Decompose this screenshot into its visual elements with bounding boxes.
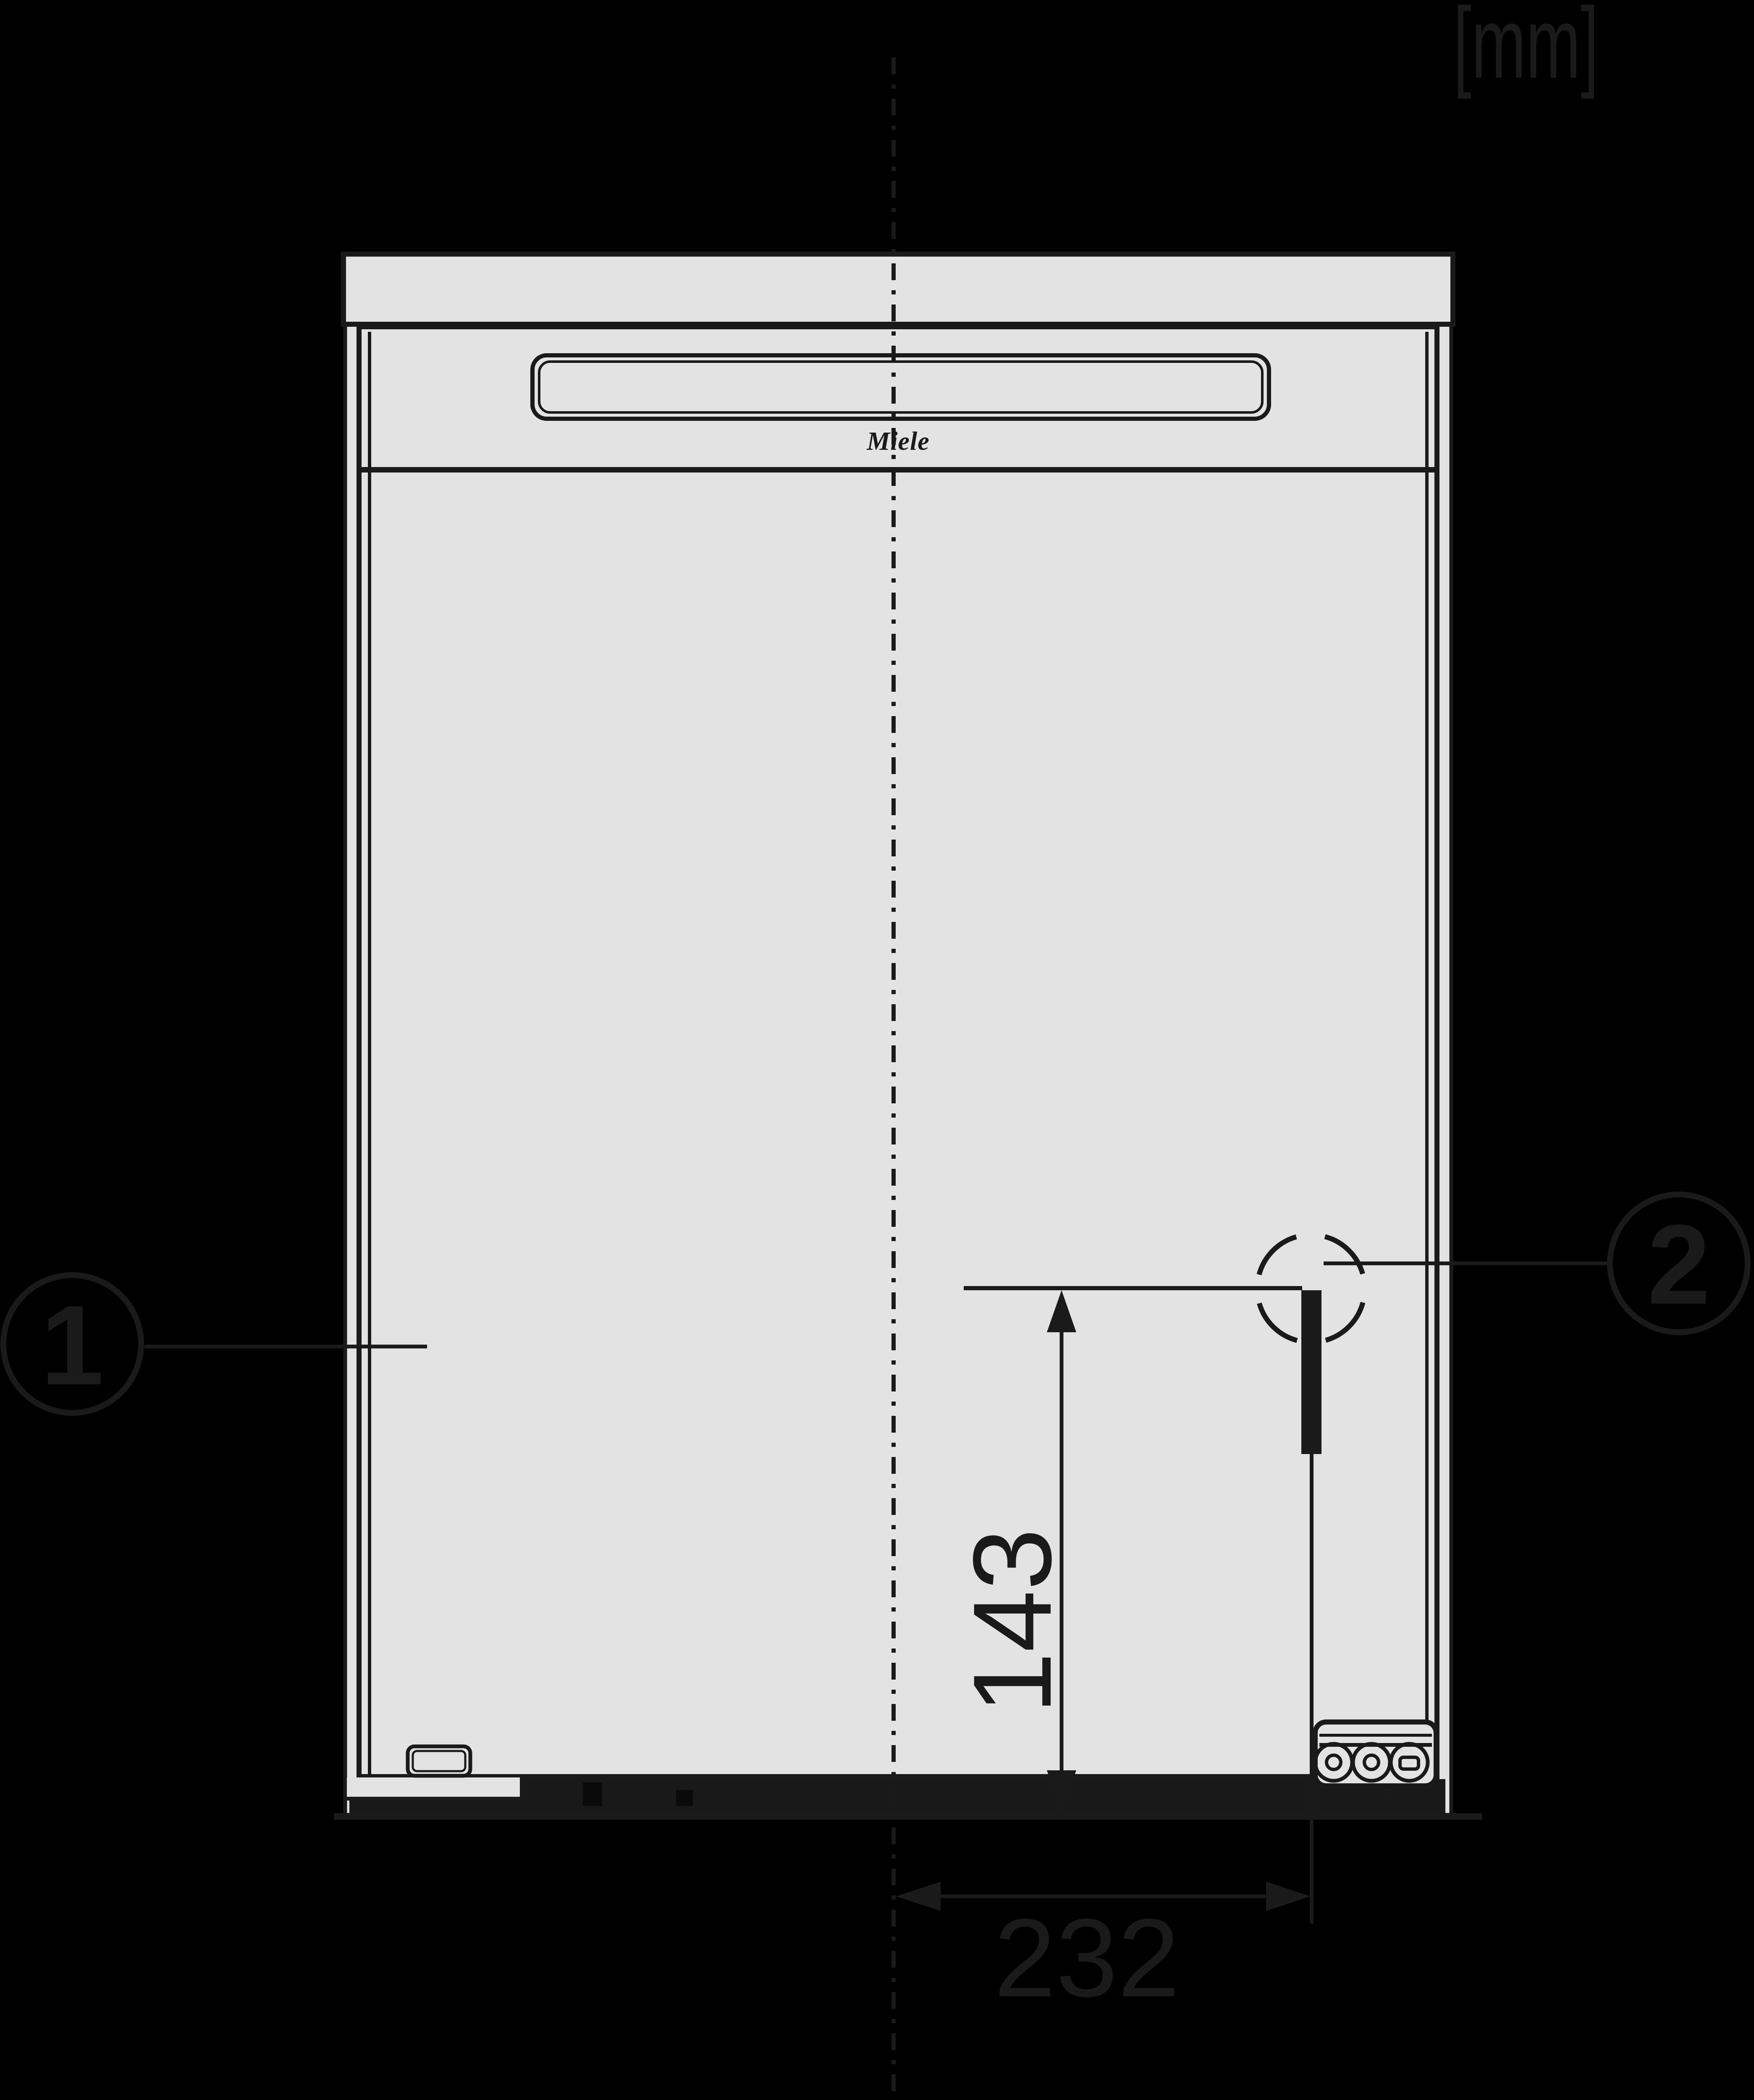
base-left-step-side [520, 1777, 523, 1801]
base-left-step-edge [347, 1797, 523, 1801]
panel-divider-line [362, 467, 1434, 472]
callout-2-number: 2 [1647, 1202, 1710, 1328]
connection-extension-line [1310, 1454, 1314, 1924]
dimension-width-value: 232 [994, 1896, 1180, 2020]
leveling-foot-mid [676, 1790, 693, 1806]
worktop-lid [343, 254, 1453, 324]
callout-1-number: 1 [41, 1282, 104, 1409]
handle-recess-outer [532, 355, 1269, 419]
base-left-step [347, 1777, 523, 1797]
connection-box-tab [1385, 1786, 1394, 1797]
door-panel [359, 327, 1437, 1777]
leveling-foot-left [583, 1782, 602, 1806]
connection-box [1315, 1722, 1436, 1797]
unit-label: [mm] [1453, 0, 1599, 99]
dimension-height-value: 143 [950, 1528, 1075, 1714]
technical-drawing: Miele [0, 0, 1754, 2100]
brand-logo: Miele [866, 427, 930, 456]
connection-box-line-1 [1319, 1734, 1432, 1737]
dimension-height-reference-line [964, 1286, 1302, 1290]
connection-position-bar [1301, 1290, 1321, 1454]
